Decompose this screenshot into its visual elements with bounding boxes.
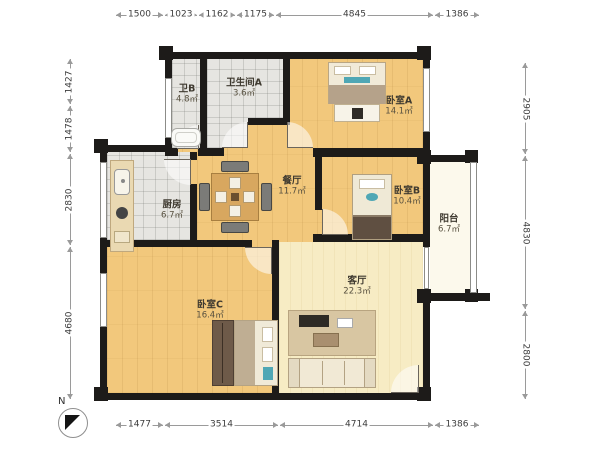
window-balcony: [470, 162, 477, 293]
dim-left-0: 1427: [63, 58, 77, 105]
pillow: [262, 327, 273, 342]
balcony-slider-door: [424, 247, 429, 289]
wall-step: [100, 145, 172, 152]
dim-left-2: 2830: [63, 153, 77, 246]
plate: [229, 205, 241, 217]
dim-top-4: 4845: [275, 8, 434, 22]
wall-hall-top-2: [198, 148, 224, 156]
wall-post: [159, 46, 173, 60]
wall-bedroom-a-bottom: [313, 148, 430, 157]
wall-bath-a-bottom: [248, 118, 290, 125]
wall-bedroom-b-left: [315, 157, 322, 210]
dim-right-2: 2800: [518, 310, 532, 400]
window-bedroom-c: [100, 273, 107, 327]
sofa-cushion-line: [322, 361, 323, 385]
wall-post: [417, 46, 431, 60]
room-label-bedroom-a: 卧室A14.1㎡: [385, 97, 412, 118]
table-centerpiece: [231, 193, 239, 201]
wall-post: [94, 387, 108, 401]
wardrobe-door-line: [222, 323, 223, 383]
window-bath-b: [165, 78, 172, 138]
bed-runner: [344, 77, 370, 83]
dresser-bedroom-a: [334, 104, 380, 122]
dim-left-3: 4680: [63, 246, 77, 400]
stove-icon: [116, 207, 128, 219]
dining-chair: [261, 183, 272, 211]
room-label-bath-a: 卫生间A3.6㎡: [226, 79, 262, 100]
bed-runner: [366, 193, 378, 201]
wall-post: [417, 150, 431, 164]
dim-bottom-1: 3514: [164, 418, 279, 432]
bed-bedroom-a: [328, 62, 386, 104]
room-label-dining: 餐厅11.7㎡: [278, 177, 305, 198]
dim-bottom-2: 4714: [279, 418, 434, 432]
tv-icon: [352, 108, 363, 119]
bathtub-inner-line: [175, 132, 197, 143]
wardrobe-bedroom-c: [212, 320, 234, 386]
dining-chair: [221, 222, 249, 233]
room-label-living: 客厅22.3㎡: [343, 277, 370, 298]
plate: [215, 191, 227, 203]
room-label-bath-b: 卫B4.8㎡: [176, 85, 198, 106]
magazine: [337, 318, 353, 328]
pillow: [262, 347, 273, 362]
wall-bath-divider: [200, 59, 207, 155]
window-bedroom-a: [423, 68, 430, 132]
plate: [243, 191, 255, 203]
dim-right-0: 2905: [518, 62, 532, 155]
sofa-arm: [364, 359, 375, 387]
pillow: [359, 179, 385, 189]
tv-icon: [299, 315, 329, 327]
bed-bedroom-c: [234, 320, 278, 386]
dim-top-2: 1162: [198, 8, 236, 22]
void-top-left: [100, 45, 165, 145]
wall-post: [417, 387, 431, 401]
dining-chair: [221, 161, 249, 172]
wall-kitchen-right-top: [190, 152, 197, 160]
wall-post: [417, 289, 431, 303]
pillow: [334, 66, 351, 75]
room-label-bedroom-b: 卧室B10.4㎡: [393, 187, 420, 208]
window-kitchen: [100, 162, 107, 238]
sofa: [288, 358, 376, 388]
dim-bottom-3: 1386: [434, 418, 480, 432]
dim-top-0: 1500: [115, 8, 164, 22]
living-rug: [288, 310, 376, 356]
pillow: [359, 66, 376, 75]
dining-table: [211, 173, 259, 221]
room-label-balcony: 阳台6.7㎡: [438, 215, 460, 236]
bathtub: [171, 128, 201, 147]
room-label-bedroom-c: 卧室C16.4㎡: [196, 301, 223, 322]
bed-footboard: [353, 215, 391, 239]
wall-hall-top-1: [165, 148, 178, 156]
wall-balcony-bottom: [423, 293, 490, 301]
wall-top: [165, 52, 430, 59]
dim-left-1: 1478: [63, 105, 77, 153]
wall-right-lower: [423, 293, 430, 400]
counter-item: [114, 231, 130, 243]
bed-blanket: [329, 85, 385, 104]
wall-bottom: [100, 393, 430, 400]
dining-chair: [199, 183, 210, 211]
faucet-dot: [121, 179, 125, 183]
plate: [229, 177, 241, 189]
kitchen-counter: [110, 160, 134, 252]
dim-right-1: 4830: [518, 155, 532, 310]
dim-top-5: 1386: [434, 8, 480, 22]
compass-needle-icon: [65, 415, 80, 430]
dim-top-1: 1023: [164, 8, 198, 22]
bed-runner: [263, 367, 273, 380]
dim-bottom-0: 1477: [115, 418, 164, 432]
compass: N: [46, 394, 94, 446]
floor-plan-canvas: 卫B4.8㎡ 卫生间A3.6㎡ 卧室A14.1㎡ 厨房6.7㎡ 餐厅11.7㎡ …: [0, 0, 600, 450]
wall-bedroom-a-left: [283, 59, 290, 124]
sofa-arm: [289, 359, 300, 387]
sofa-cushion-line: [344, 361, 345, 385]
compass-north-label: N: [58, 396, 65, 407]
wall-post: [94, 139, 108, 153]
coffee-table: [313, 333, 339, 347]
room-label-kitchen: 厨房6.7㎡: [161, 201, 183, 222]
dim-top-3: 1175: [236, 8, 275, 22]
wall-kitchen-right: [190, 184, 197, 242]
bed-blanket: [235, 321, 255, 385]
bed-bedroom-b: [352, 174, 392, 240]
